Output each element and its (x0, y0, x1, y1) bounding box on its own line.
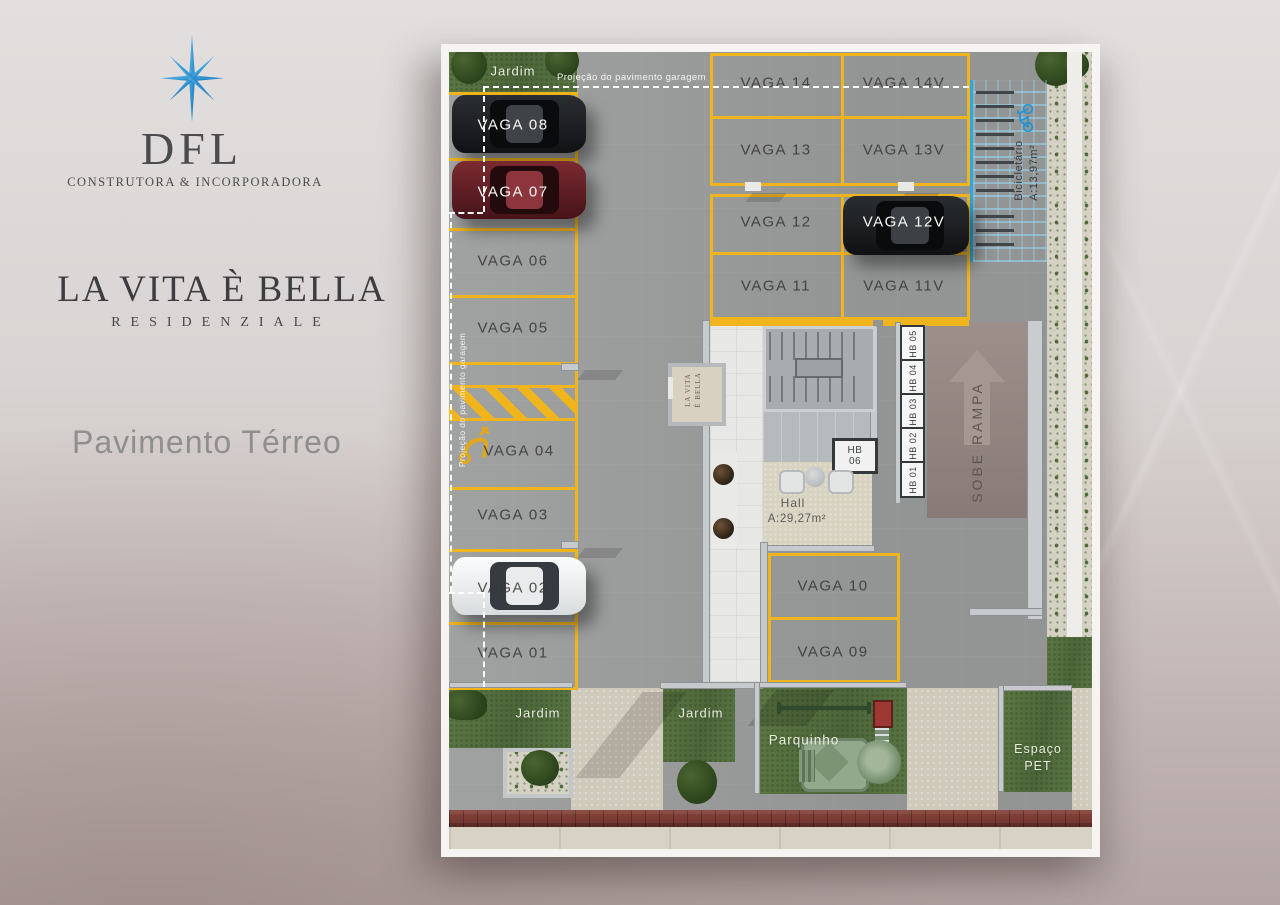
armchair (779, 470, 805, 494)
garden-top-label: Jardim (490, 64, 535, 79)
play-roller (799, 750, 815, 782)
hb-label: HB 01 (908, 466, 918, 494)
hb06-box: HB 06 (832, 438, 878, 474)
wall (998, 685, 1004, 792)
wall (754, 682, 907, 688)
hb-label: HB 02 (908, 432, 918, 460)
projection-line (483, 86, 969, 88)
parking-line (449, 228, 578, 231)
parking-line (710, 116, 970, 119)
walkway-bottom-right (1072, 688, 1092, 812)
shadow (745, 193, 786, 202)
grass-right (1047, 637, 1092, 692)
hb-label: HB 04 (908, 364, 918, 392)
parking-spot-label: VAGA 07 (477, 184, 548, 201)
parking-line (449, 549, 578, 552)
garden-label: Jardim (515, 706, 560, 721)
project-name: LA VITA È BELLA (32, 268, 412, 311)
swing-post (777, 702, 781, 714)
parking-spot-label: VAGA 13 (740, 142, 811, 159)
bush (521, 750, 559, 786)
slide-spiral (857, 740, 901, 784)
bike-area-caption: Bicicletário A:13,97m² (1005, 87, 1049, 217)
swing-post (867, 702, 871, 714)
swing-bar (779, 706, 869, 710)
parking-spot-label: VAGA 12 (740, 214, 811, 231)
page: DFL CONSTRUTORA & INCORPORADORA LA VITA … (0, 0, 1280, 905)
totem-line1: LA VITA (683, 372, 694, 408)
wall (754, 682, 760, 794)
sidewalk (449, 827, 1092, 849)
parking-spot-label: VAGA 04 (483, 443, 554, 460)
wall-stub (561, 541, 579, 549)
projection-line (483, 592, 485, 687)
hb-box: HB 04 (900, 359, 925, 396)
armchair (828, 470, 854, 494)
hb-box: HB 03 (900, 393, 925, 430)
planter (713, 464, 734, 485)
parking-spot-label: VAGA 02 (477, 580, 548, 597)
parking-spot-label: VAGA 14V (863, 75, 946, 92)
parking-spot-label: VAGA 13V (863, 142, 946, 159)
hb-label: HB 05 (908, 330, 918, 358)
hb-box: HB 01 (900, 461, 925, 498)
wall (998, 685, 1072, 691)
projection-line (449, 592, 483, 594)
dfl-star-icon (154, 34, 230, 124)
totem-sign: LA VITA È BELLA (673, 367, 713, 413)
pet-label-line1: Espaço (1014, 742, 1062, 756)
wall (763, 545, 875, 552)
garden-label: Jardim (678, 706, 723, 721)
shadow (577, 548, 623, 558)
pet-label-line2: PET (1024, 759, 1051, 773)
parking-spot-label: VAGA 03 (477, 507, 548, 524)
parking-spot-label: VAGA 14 (740, 75, 811, 92)
parking-spot-label: VAGA 10 (797, 578, 868, 595)
bike-area-size: A:13,97m² (1027, 140, 1042, 200)
hb-box: HB 05 (900, 325, 925, 362)
parking-spot-label: VAGA 06 (477, 253, 548, 270)
projection-line (450, 212, 452, 592)
bicycle-icon (1015, 103, 1039, 133)
logo-monogram: DFL (92, 122, 292, 175)
stair-treads (769, 332, 865, 360)
bush (677, 760, 717, 804)
wall (1027, 320, 1043, 620)
bike-area-name: Bicicletário (1012, 140, 1027, 200)
hb06-line2: 06 (849, 456, 861, 467)
hb-box: HB 02 (900, 427, 925, 464)
bush (443, 690, 487, 720)
logo-subtitle: CONSTRUTORA & INCORPORADORA (55, 175, 335, 190)
planter (713, 518, 734, 539)
projection-caption-side: Projeção do pavimento garagem (456, 320, 468, 480)
parking-line (449, 622, 578, 625)
hall-area: A:29,27m² (768, 513, 826, 525)
walkway-right (1067, 52, 1082, 637)
parking-spot-label: VAGA 11 (741, 278, 811, 295)
floor-plan: Jardim (441, 44, 1100, 857)
parking-line (449, 487, 578, 490)
wall (660, 682, 763, 689)
parking-spot-label: VAGA 09 (797, 644, 868, 661)
hall-label: Hall (781, 496, 806, 510)
brick-strip (449, 810, 1092, 827)
parking-line (841, 53, 844, 183)
shadow (577, 370, 623, 380)
parking-spot-label: VAGA 01 (477, 645, 548, 662)
floor-plan-title: Pavimento Térreo (72, 424, 342, 461)
parking-spot-label: VAGA 05 (477, 320, 548, 337)
wall (449, 682, 573, 688)
ramp-label: SOBE RAMPA (966, 372, 988, 512)
parking-spot-label: VAGA 08 (477, 117, 548, 134)
parking-block (710, 53, 970, 186)
parking-spot-label: VAGA 12V (863, 214, 946, 231)
project-subtitle: RESIDENZIALE (36, 315, 406, 331)
parking-line (768, 617, 900, 620)
hb06-line1: HB (848, 445, 863, 456)
wall (760, 542, 768, 688)
play-box (873, 700, 893, 728)
hb-label: HB 03 (908, 398, 918, 426)
side-table (805, 467, 825, 487)
projection-caption-top: Projeção do pavimento garagem (557, 72, 706, 83)
walkway (907, 688, 998, 812)
wall-stub (561, 363, 579, 371)
playground-label: Parquinho (769, 733, 840, 748)
parking-spot-label: VAGA 11V (863, 278, 945, 295)
wall (969, 608, 1043, 616)
totem-line2: È BELLA (693, 372, 704, 408)
projection-line (483, 86, 485, 212)
bush (451, 46, 487, 84)
parking-line (449, 362, 578, 365)
stair-rail (795, 358, 843, 378)
door-opening (898, 182, 914, 191)
projection-line (449, 212, 483, 214)
stair-treads (769, 376, 865, 402)
parking-line (449, 295, 578, 298)
door-opening (745, 182, 761, 191)
